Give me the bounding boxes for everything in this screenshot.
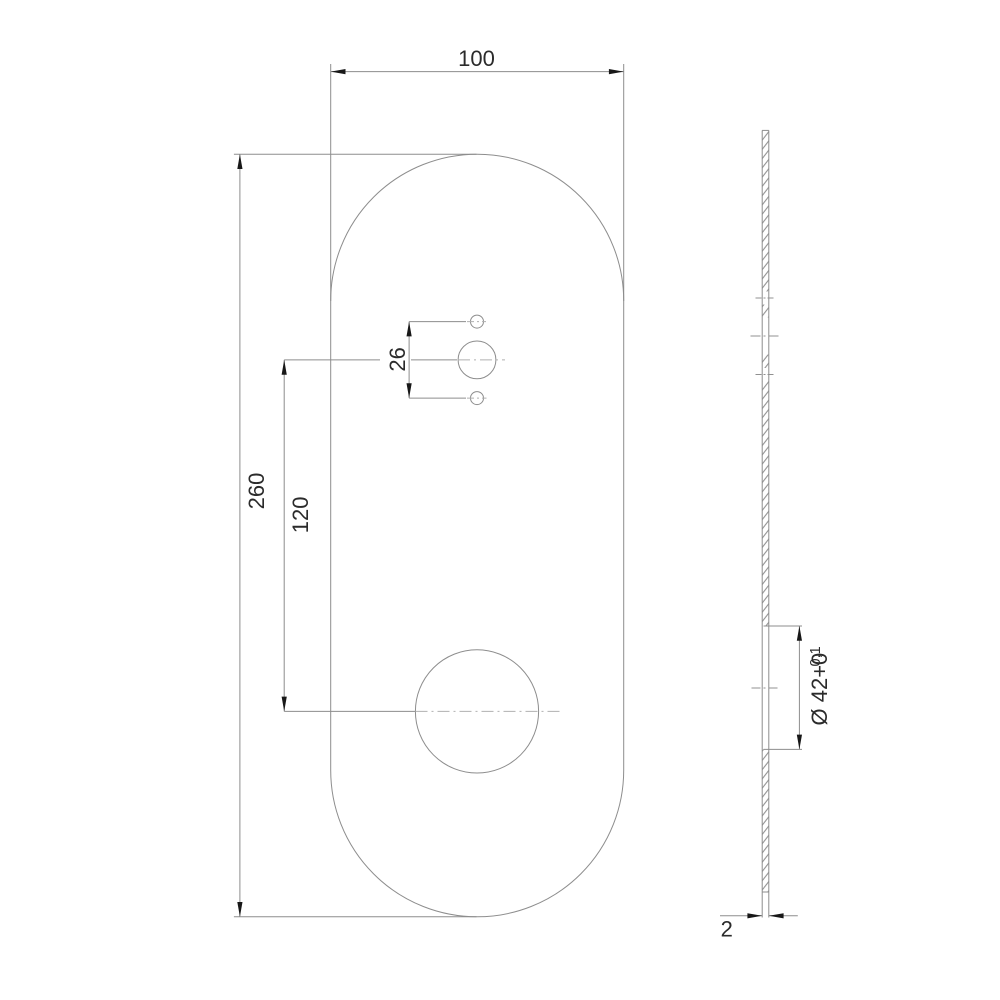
svg-text:120: 120 [288,497,313,534]
svg-text:26: 26 [385,347,410,371]
svg-text:2: 2 [721,917,733,942]
svg-text:0,1: 0,1 [808,646,824,666]
svg-text:260: 260 [244,473,269,510]
svg-text:100: 100 [458,46,495,71]
